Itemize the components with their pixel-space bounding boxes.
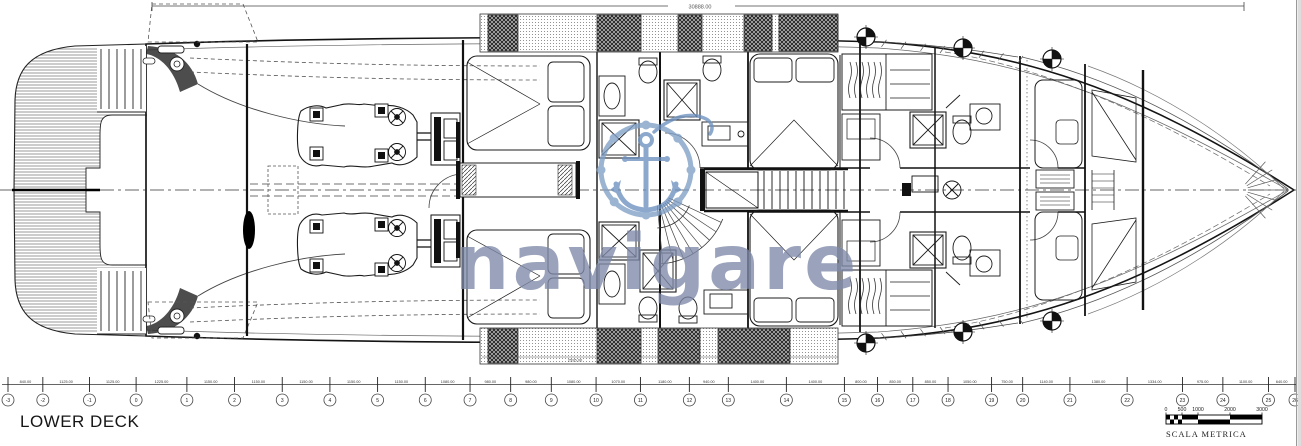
station-number: 1 [185, 398, 188, 404]
station-number: 22 [1124, 398, 1130, 404]
station-segment-dimension: 1150.00 [204, 380, 217, 384]
station-segment-dimension: 1100.00 [1239, 380, 1252, 384]
bulkhead-fitting [243, 211, 255, 249]
station-segment-dimension: 1050.00 [963, 380, 977, 384]
station-segment-dimension: 1150.00 [395, 380, 408, 384]
lower-deck-plan: 2595.00 30888.00 -3-2-101234567891011121… [0, 0, 1301, 446]
station-number: 2 [233, 398, 236, 404]
station-segment-dimension: 940.00 [703, 380, 715, 384]
watermark-brand-text: navigare [455, 219, 860, 308]
station-number: -1 [87, 398, 92, 404]
station-segment-dimension: 850.00 [925, 380, 937, 384]
station-segment-dimension: 1140.00 [1040, 380, 1053, 384]
transom-steps-group [97, 268, 146, 334]
deck-hatch-band-top [480, 14, 838, 52]
station-segment-dimension: 850.00 [889, 380, 901, 384]
station-segment-dimension: 1150.00 [299, 380, 312, 384]
station-segment-dimension: 1150.00 [347, 380, 360, 384]
station-number: 13 [726, 398, 732, 404]
station-number: 24 [1220, 398, 1226, 404]
station-number: -3 [6, 398, 11, 404]
station-number: 0 [135, 398, 138, 404]
centerline-sideboard [456, 161, 580, 199]
station-segment-dimension: 640.00 [1276, 380, 1288, 384]
station-number: 3 [281, 398, 284, 404]
station-segment-dimension: 750.00 [1001, 380, 1013, 384]
station-number: 12 [687, 398, 693, 404]
station-number: 14 [784, 398, 790, 404]
station-segment-dimension: 1400.00 [750, 380, 764, 384]
station-number: 26 [1292, 398, 1298, 404]
station-segment-dimension: 1400.00 [809, 380, 823, 384]
scale-tick-label: 0 [1165, 407, 1168, 413]
station-segment-dimension: 1150.00 [252, 380, 265, 384]
overall-length-label: 30888.00 [689, 5, 712, 11]
station-segment-dimension: 980.00 [485, 380, 497, 384]
station-segment-dimension: 1080.00 [567, 380, 581, 384]
scale-tick-label: 1000 [1192, 407, 1204, 413]
station-segment-dimension: 1225.00 [155, 380, 169, 384]
scale-tick-label: 2000 [1224, 407, 1236, 413]
station-number: 4 [329, 398, 332, 404]
station-segment-dimension: 1334.00 [1148, 380, 1162, 384]
scale-bar-title: SCALA METRICA [1166, 429, 1247, 439]
station-number: 25 [1266, 398, 1272, 404]
station-segment-dimension: 1125.00 [106, 380, 119, 384]
station-number: 16 [875, 398, 881, 404]
station-number: 5 [376, 398, 379, 404]
station-number: 21 [1067, 398, 1073, 404]
naval-drawing-sheet: 2595.00 30888.00 -3-2-101234567891011121… [0, 0, 1301, 446]
station-segment-dimension: 1125.00 [59, 380, 72, 384]
transom-steps-group [97, 46, 146, 112]
station-segment-dimension: 1080.00 [441, 380, 455, 384]
station-number: 8 [509, 398, 512, 404]
station-segment-dimension: 800.00 [855, 380, 867, 384]
station-segment-dimension: 1180.00 [658, 380, 671, 384]
deck-hatch-band-bottom [480, 328, 838, 364]
station-segment-dimension: 975.00 [1197, 380, 1209, 384]
station-number: 23 [1180, 398, 1186, 404]
station-segment-dimension: 1380.00 [1092, 380, 1106, 384]
station-number: 9 [550, 398, 553, 404]
station-segment-dimension: 840.00 [20, 380, 32, 384]
scale-tick-label: 500 [1178, 407, 1187, 413]
hatch-dimension-label: 2595.00 [568, 358, 583, 363]
station-segment-dimension: 980.00 [525, 380, 537, 384]
station-number: 19 [989, 398, 995, 404]
deck-title: LOWER DECK [20, 412, 139, 431]
station-number: 11 [638, 398, 643, 404]
station-number: 6 [424, 398, 427, 404]
station-number: 10 [593, 398, 599, 404]
station-segment-dimension: 1070.00 [611, 380, 625, 384]
station-number: 20 [1020, 398, 1026, 404]
scale-tick-label: 3000 [1256, 407, 1268, 413]
station-number: 18 [945, 398, 951, 404]
station-number: 15 [842, 398, 848, 404]
station-number: 7 [469, 398, 472, 404]
station-number: -2 [41, 398, 46, 404]
sheet-edge-shadow [1298, 0, 1301, 446]
station-number: 17 [910, 398, 916, 404]
